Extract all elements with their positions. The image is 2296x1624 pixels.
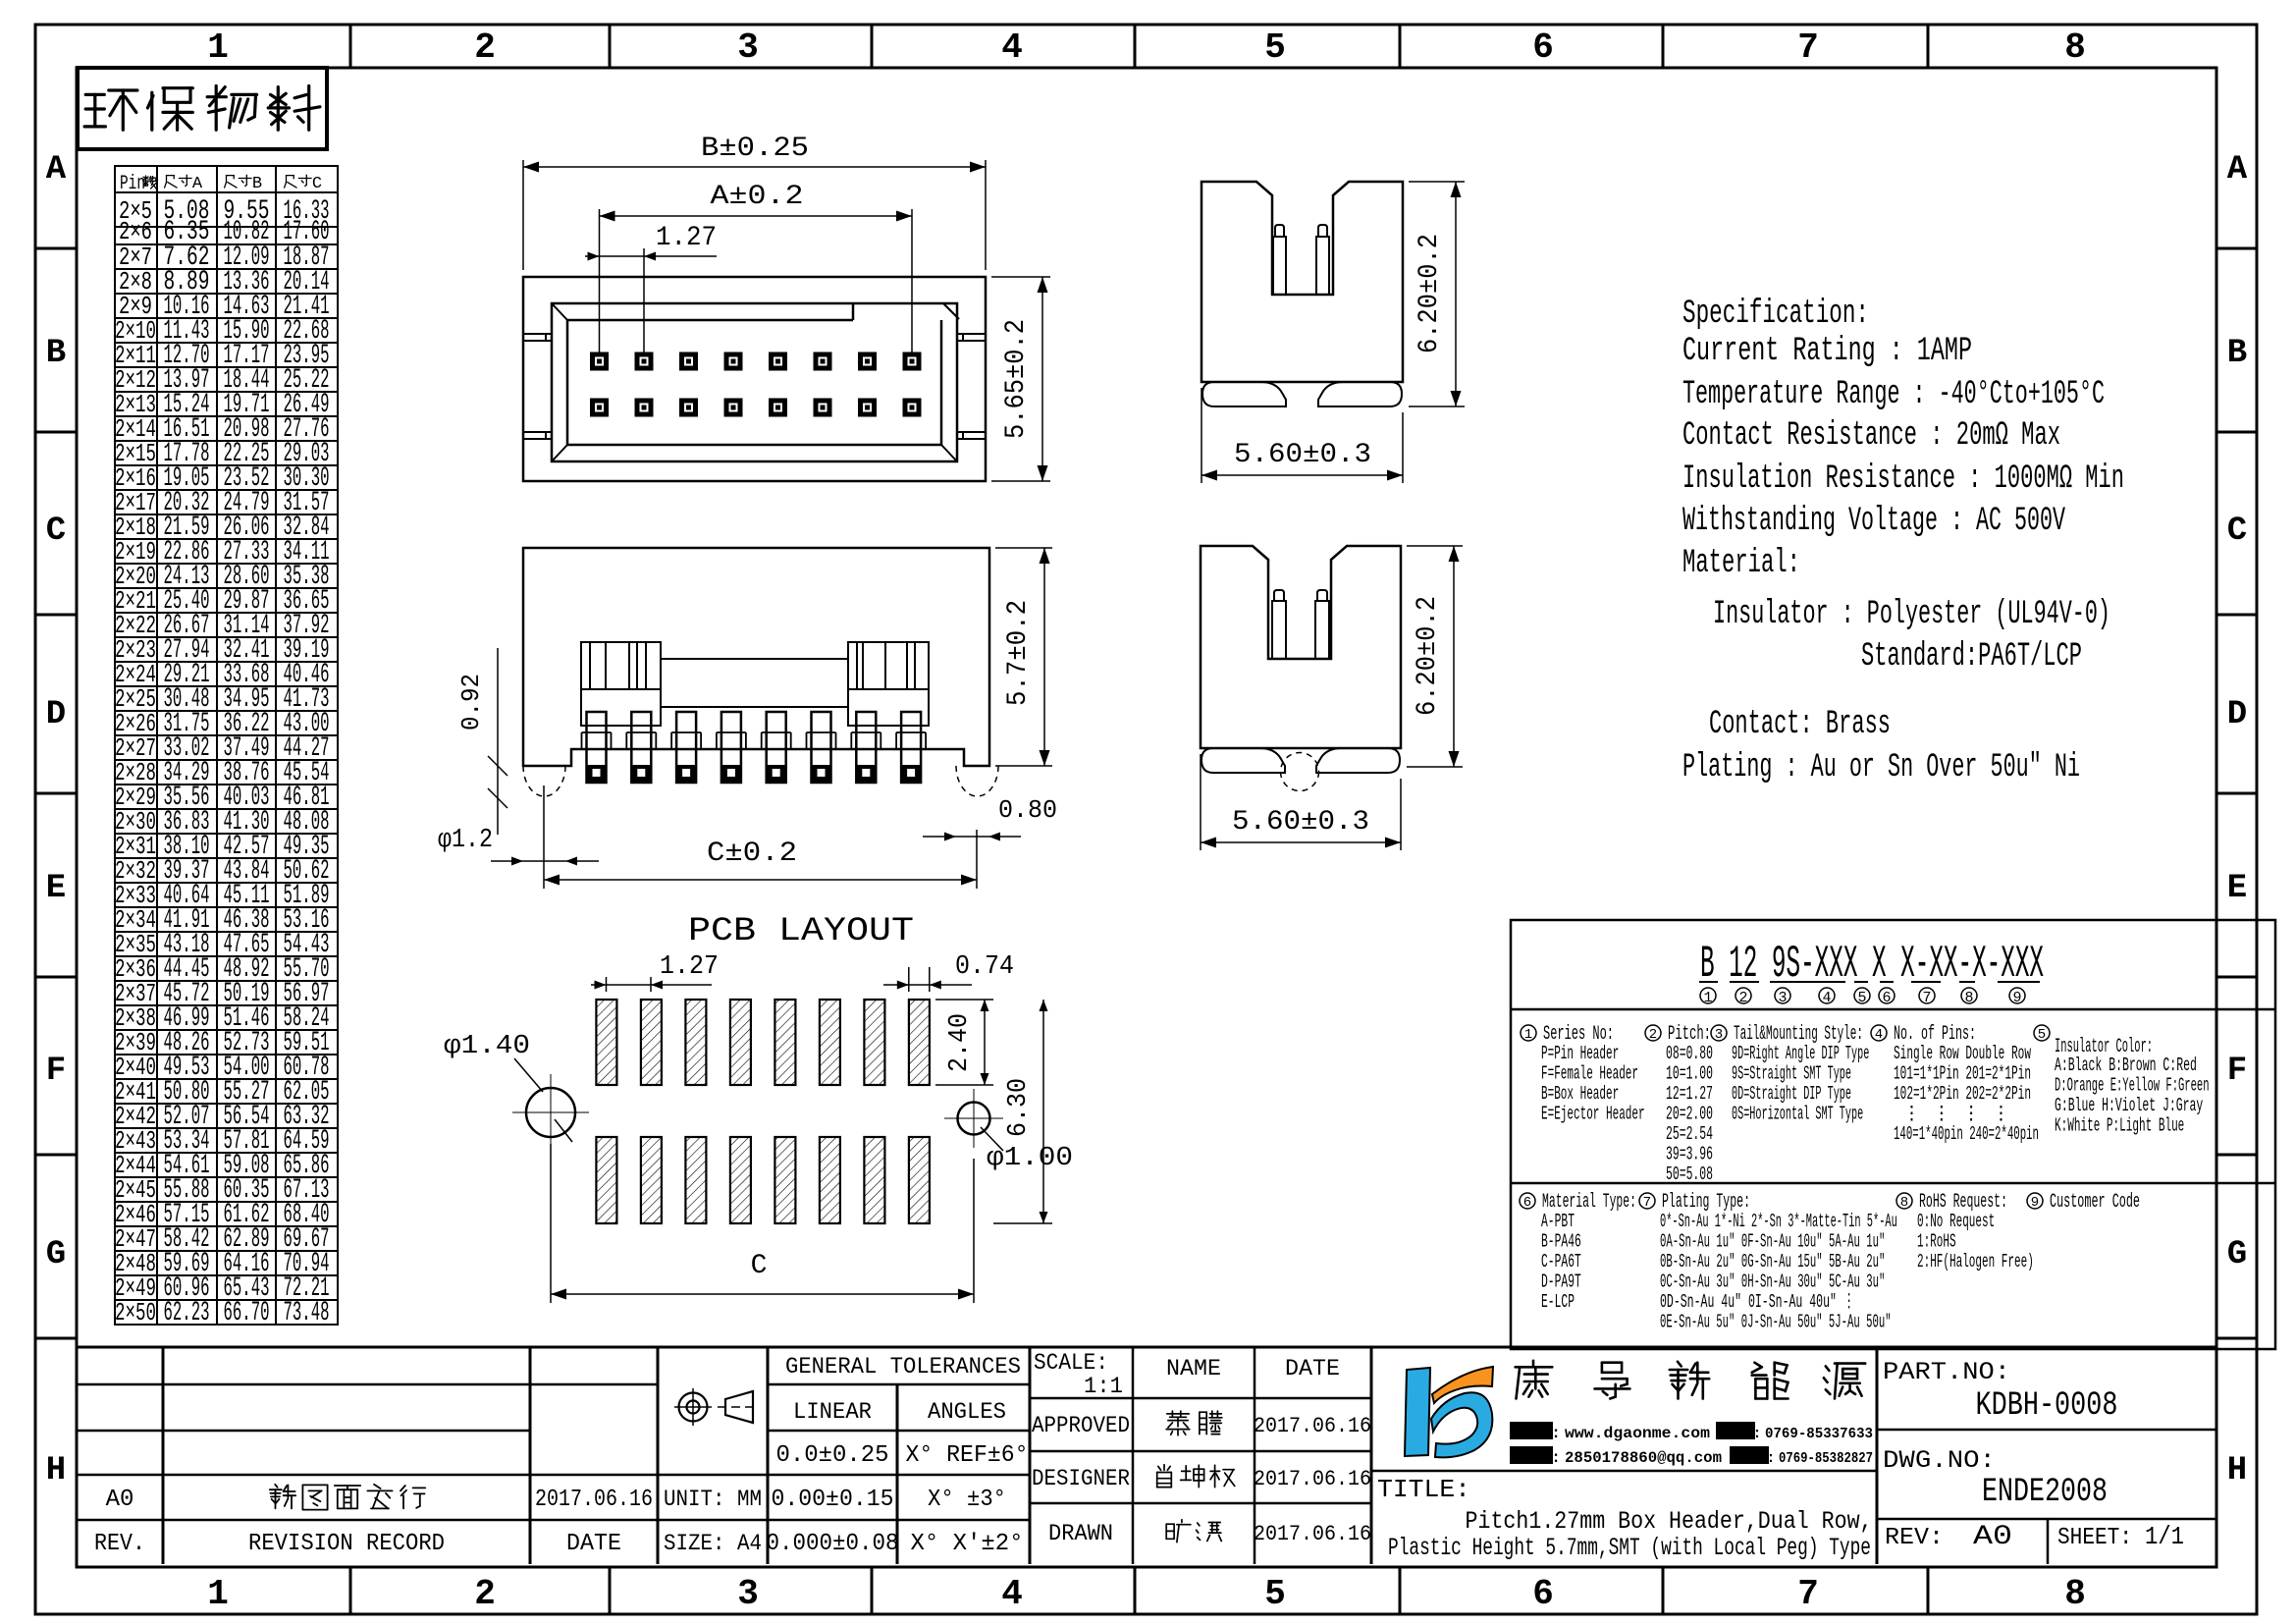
svg-text:6: 6: [1532, 1574, 1554, 1614]
svg-text:5: 5: [1264, 1574, 1286, 1614]
svg-text:0A-Sn-Au 1u" 0F-Sn-Au 10u" 5A: 0A-Sn-Au 1u" 0F-Sn-Au 10u" 5A-Au 1u": [1660, 1231, 1885, 1253]
svg-text:A0: A0: [106, 1487, 134, 1513]
svg-text:B: B: [252, 175, 262, 193]
svg-text:1.27: 1.27: [656, 223, 717, 253]
svg-text:X° X'±2°: X° X'±2°: [911, 1531, 1024, 1557]
svg-text:1: 1: [207, 27, 229, 68]
svg-text:A: A: [46, 151, 67, 189]
svg-text:H: H: [2227, 1452, 2247, 1489]
svg-text:0.000±0.08: 0.000±0.08: [767, 1531, 899, 1557]
svg-text:DATE: DATE: [1285, 1356, 1340, 1381]
svg-text:Plastic Height 5.7mm,SMT (with: Plastic Height 5.7mm,SMT (with Local Peg…: [1388, 1534, 1871, 1562]
svg-text:B: B: [46, 335, 66, 372]
svg-text:G: G: [46, 1236, 66, 1273]
svg-text:2850178860@qq.com: 2850178860@qq.com: [1565, 1449, 1722, 1467]
svg-text:20=2.00: 20=2.00: [1666, 1104, 1713, 1125]
svg-text:8: 8: [2064, 1574, 2086, 1614]
svg-text:φ1.40: φ1.40: [444, 1032, 530, 1061]
svg-text:D-PA9T: D-PA9T: [1541, 1272, 1581, 1293]
svg-text:102=1*2Pin 202=2*2Pin: 102=1*2Pin 202=2*2Pin: [1894, 1083, 2031, 1105]
svg-text:2: 2: [474, 27, 496, 68]
svg-text:6: 6: [1532, 27, 1554, 68]
svg-text:4: 4: [1875, 1027, 1883, 1043]
svg-text:5: 5: [2038, 1027, 2046, 1043]
svg-text:UNIT: MM: UNIT: MM: [664, 1487, 762, 1512]
svg-text:P=Pin Header: P=Pin Header: [1541, 1043, 1619, 1064]
svg-text:3: 3: [737, 1574, 759, 1614]
svg-text:3: 3: [1715, 1027, 1723, 1043]
svg-text:B-PA46: B-PA46: [1541, 1231, 1581, 1253]
svg-text:F: F: [2227, 1053, 2247, 1090]
svg-text:φ1.2: φ1.2: [438, 826, 493, 855]
svg-text:1:RoHS: 1:RoHS: [1917, 1231, 1956, 1253]
svg-text:H: H: [46, 1452, 66, 1489]
svg-text:0.00±0.15: 0.00±0.15: [772, 1487, 894, 1513]
svg-text:F: F: [46, 1053, 66, 1090]
svg-text:0C-Sn-Au 3u" 0H-Sn-Au 30u" 5C: 0C-Sn-Au 3u" 0H-Sn-Au 30u" 5C-Au 3u": [1660, 1272, 1885, 1293]
svg-text:73.48: 73.48: [284, 1298, 330, 1328]
svg-text::: :: [1551, 1425, 1561, 1442]
svg-text:08=0.80: 08=0.80: [1666, 1043, 1713, 1064]
svg-text:7: 7: [1922, 990, 1931, 1006]
svg-text:Customer Code: Customer Code: [2050, 1191, 2140, 1214]
svg-text:2: 2: [1649, 1027, 1657, 1043]
svg-text:Pitch1.27mm Box Header,Dual Ro: Pitch1.27mm Box Header,Dual Row,: [1466, 1507, 1873, 1536]
svg-text:NAME: NAME: [1166, 1356, 1221, 1381]
svg-text:X° ±3°: X° ±3°: [928, 1487, 1006, 1513]
svg-text:Pin: Pin: [120, 173, 145, 195]
svg-text:3: 3: [737, 27, 759, 68]
svg-text:Contact Resistance : 20mΩ Max: Contact Resistance : 20mΩ Max: [1682, 417, 2060, 455]
svg-text:9D=Right Angle DIP Type: 9D=Right Angle DIP Type: [1732, 1043, 1869, 1064]
svg-text:Contact: Brass: Contact: Brass: [1709, 706, 1891, 743]
svg-text:C: C: [751, 1251, 768, 1281]
svg-text:101=1*1Pin 201=2*1Pin: 101=1*1Pin 201=2*1Pin: [1894, 1063, 2031, 1085]
svg-text:DRAWN: DRAWN: [1048, 1521, 1113, 1546]
svg-text:5.7±0.2: 5.7±0.2: [1003, 600, 1034, 706]
svg-text:C±0.2: C±0.2: [707, 839, 797, 869]
svg-text:PCB LAYOUT: PCB LAYOUT: [688, 913, 914, 950]
svg-text:φ1.00: φ1.00: [987, 1144, 1073, 1173]
svg-text:7: 7: [1797, 27, 1819, 68]
svg-text:0.0±0.25: 0.0±0.25: [776, 1442, 889, 1469]
svg-text:5.60±0.3: 5.60±0.3: [1234, 440, 1371, 470]
svg-text:9: 9: [2031, 1195, 2039, 1211]
svg-text:REV:: REV:: [1885, 1525, 1944, 1551]
svg-text:9S=Straight SMT Type: 9S=Straight SMT Type: [1732, 1063, 1851, 1085]
svg-text:Current Rating : 1AMP: Current Rating : 1AMP: [1682, 333, 1972, 370]
svg-text:ANGLES: ANGLES: [928, 1399, 1006, 1425]
svg-text:GENERAL TOLERANCES: GENERAL TOLERANCES: [785, 1354, 1021, 1380]
svg-text:DATE: DATE: [566, 1531, 621, 1557]
svg-text:9: 9: [2012, 990, 2021, 1006]
svg-text:K:White P:Light Blue: K:White P:Light Blue: [2055, 1115, 2184, 1137]
svg-text:5.65±0.2: 5.65±0.2: [1001, 319, 1032, 439]
svg-text:2.40: 2.40: [945, 1013, 975, 1072]
svg-text:0*-Sn-Au 1*-Ni 2*-Sn 3*-Matte-: 0*-Sn-Au 1*-Ni 2*-Sn 3*-Matte-Tin 5*-Au: [1660, 1211, 1897, 1232]
svg-text:62.23: 62.23: [164, 1298, 210, 1328]
svg-text:0D=Straight DIP Type: 0D=Straight DIP Type: [1732, 1083, 1851, 1105]
svg-text:2×50: 2×50: [115, 1298, 156, 1327]
svg-text:3: 3: [1778, 990, 1787, 1006]
svg-text:F=Female Header: F=Female Header: [1541, 1063, 1638, 1085]
svg-text:Insulation Resistance : 1000MΩ: Insulation Resistance : 1000MΩ Min: [1682, 460, 2124, 498]
svg-text:1/1: 1/1: [2145, 1522, 2184, 1551]
svg-text:E: E: [2227, 870, 2247, 907]
svg-text:Material:: Material:: [1682, 545, 1800, 582]
svg-text:1:1: 1:1: [1084, 1374, 1123, 1399]
svg-text:Insulator : Polyester (UL94V-0: Insulator : Polyester (UL94V-0): [1713, 596, 2110, 633]
svg-text:6.20±0.2: 6.20±0.2: [1415, 234, 1445, 353]
svg-text:7: 7: [1643, 1195, 1651, 1211]
svg-text:DESIGNER: DESIGNER: [1032, 1466, 1130, 1491]
svg-text:B=Box Header: B=Box Header: [1541, 1083, 1619, 1105]
svg-text:2: 2: [474, 1574, 496, 1614]
svg-text:B: B: [2227, 335, 2247, 372]
svg-text:0.74: 0.74: [955, 952, 1014, 982]
svg-text:A: A: [2227, 151, 2248, 189]
svg-text:1: 1: [207, 1574, 229, 1614]
svg-text:39=3.96: 39=3.96: [1666, 1144, 1713, 1165]
svg-text:12=1.27: 12=1.27: [1666, 1083, 1713, 1105]
svg-text:TITLE:: TITLE:: [1377, 1475, 1470, 1504]
svg-text:6: 6: [1523, 1195, 1531, 1211]
svg-text:⋮ ⋮ ⋮ ⋮: ⋮ ⋮ ⋮ ⋮: [1902, 1104, 2010, 1125]
svg-text:LINEAR: LINEAR: [793, 1399, 872, 1425]
svg-text:0.80: 0.80: [998, 795, 1057, 825]
svg-text:E=Ejector Header: E=Ejector Header: [1541, 1104, 1645, 1125]
svg-text:SCALE:: SCALE:: [1034, 1350, 1108, 1376]
svg-text:25=2.54: 25=2.54: [1666, 1123, 1713, 1145]
svg-text:5: 5: [1857, 990, 1866, 1006]
svg-text:6.20±0.2: 6.20±0.2: [1413, 596, 1443, 716]
svg-text:C: C: [312, 175, 322, 193]
svg-text:G:Blue H:Violet J:Gray: G:Blue H:Violet J:Gray: [2055, 1095, 2203, 1116]
svg-text:0D-Sn-Au 4u" 0I-Sn-Au 40u": 0D-Sn-Au 4u" 0I-Sn-Au 40u" ⋮: [1660, 1291, 1854, 1313]
svg-text:6.30: 6.30: [1004, 1078, 1034, 1137]
svg-text:KDBH-0008: KDBH-0008: [1976, 1387, 2118, 1425]
svg-text:1: 1: [1703, 990, 1712, 1006]
svg-text:8: 8: [2064, 27, 2086, 68]
svg-text:1: 1: [1524, 1027, 1532, 1043]
svg-text:10=1.00: 10=1.00: [1666, 1063, 1713, 1085]
svg-text:A: A: [192, 175, 203, 193]
svg-text:C-PA6T: C-PA6T: [1541, 1251, 1581, 1272]
svg-text::: :: [1752, 1426, 1761, 1442]
svg-text:REV.: REV.: [94, 1531, 145, 1557]
svg-text:1.27: 1.27: [660, 952, 719, 982]
svg-text:REVISION RECORD: REVISION RECORD: [248, 1531, 445, 1557]
svg-text:5.60±0.3: 5.60±0.3: [1232, 807, 1369, 838]
svg-text:0769-85337633: 0769-85337633: [1765, 1426, 1873, 1442]
svg-text:DWG.NO:: DWG.NO:: [1883, 1446, 1996, 1475]
svg-text:Withstanding Voltage : AC 500V: Withstanding Voltage : AC 500V: [1682, 503, 2065, 540]
svg-text:Temperature Range : -40°Cto+10: Temperature Range : -40°Cto+105°C: [1682, 376, 2105, 413]
svg-text:APPROVED: APPROVED: [1032, 1413, 1130, 1438]
svg-text:2017.06.16: 2017.06.16: [1254, 1522, 1371, 1546]
svg-text:ENDE2008: ENDE2008: [1982, 1474, 2108, 1511]
svg-text:E: E: [46, 870, 66, 907]
svg-text:7: 7: [1797, 1574, 1819, 1614]
svg-text:6: 6: [1882, 990, 1891, 1006]
svg-text:0S=Horizontal SMT Type: 0S=Horizontal SMT Type: [1732, 1104, 1863, 1125]
svg-text:C: C: [2227, 513, 2247, 550]
svg-text:A0: A0: [1973, 1522, 2012, 1552]
svg-text:0B-Sn-Au 2u" 0G-Sn-Au 15u" 5B: 0B-Sn-Au 2u" 0G-Sn-Au 15u" 5B-Au 2u": [1660, 1251, 1885, 1272]
svg-text:Specification:: Specification:: [1682, 296, 1869, 333]
svg-text:2017.06.16: 2017.06.16: [1254, 1414, 1371, 1438]
svg-text:0:No Request: 0:No Request: [1917, 1211, 1995, 1232]
svg-text::: :: [1551, 1449, 1561, 1467]
svg-text:5: 5: [1264, 27, 1286, 68]
svg-text:SHEET:: SHEET:: [2057, 1525, 2132, 1551]
svg-text:4: 4: [1001, 27, 1023, 68]
svg-text:A±0.2: A±0.2: [711, 182, 804, 212]
svg-text:2: 2: [1738, 990, 1747, 1006]
svg-text:G: G: [2227, 1236, 2247, 1273]
svg-text:Standard:PA6T/LCP: Standard:PA6T/LCP: [1861, 638, 2082, 676]
svg-text:0769-85382827: 0769-85382827: [1779, 1450, 1873, 1467]
svg-text:66.70: 66.70: [224, 1298, 270, 1328]
svg-text:2017.06.16: 2017.06.16: [535, 1487, 653, 1513]
svg-text:2017.06.16: 2017.06.16: [1254, 1467, 1371, 1491]
svg-text:2:HF(Halogen Free): 2:HF(Halogen Free): [1917, 1251, 2034, 1272]
svg-text::: :: [1766, 1450, 1775, 1467]
svg-text:140=1*40pin 240=2*40pin: 140=1*40pin 240=2*40pin: [1894, 1123, 2039, 1145]
svg-text:X° REF±6°: X° REF±6°: [906, 1442, 1029, 1469]
svg-text:D: D: [46, 696, 66, 733]
svg-text:0E-Sn-Au 5u" 0J-Sn-Au 50u" 5J: 0E-Sn-Au 5u" 0J-Sn-Au 50u" 5J-Au 50u": [1660, 1312, 1892, 1333]
svg-text:SIZE: A4: SIZE: A4: [664, 1531, 762, 1556]
svg-text:E-LCP: E-LCP: [1541, 1291, 1575, 1313]
svg-text:Plating : Au or Sn Over 50u" N: Plating : Au or Sn Over 50u" Ni: [1682, 749, 2080, 786]
svg-text:D:Orange E:Yellow F:Green: D:Orange E:Yellow F:Green: [2055, 1075, 2210, 1097]
svg-text:A:Black B:Brown C:Red: A:Black B:Brown C:Red: [2055, 1055, 2197, 1076]
svg-text:8: 8: [1964, 990, 1973, 1006]
svg-text:0.92: 0.92: [456, 674, 486, 731]
svg-text:D: D: [2227, 696, 2247, 733]
svg-text:Single Row Double Row: Single Row Double Row: [1894, 1043, 2031, 1064]
svg-text:A-PBT: A-PBT: [1541, 1211, 1575, 1232]
svg-text:4: 4: [1001, 1574, 1023, 1614]
svg-text:www.dgaonme.com: www.dgaonme.com: [1565, 1425, 1710, 1442]
svg-text:4: 4: [1822, 990, 1831, 1006]
svg-text:8: 8: [1900, 1195, 1908, 1211]
svg-text:C: C: [46, 513, 66, 550]
svg-text:PART.NO:: PART.NO:: [1883, 1358, 2010, 1386]
svg-text:B±0.25: B±0.25: [701, 134, 809, 164]
svg-text:50=5.08: 50=5.08: [1666, 1164, 1713, 1185]
